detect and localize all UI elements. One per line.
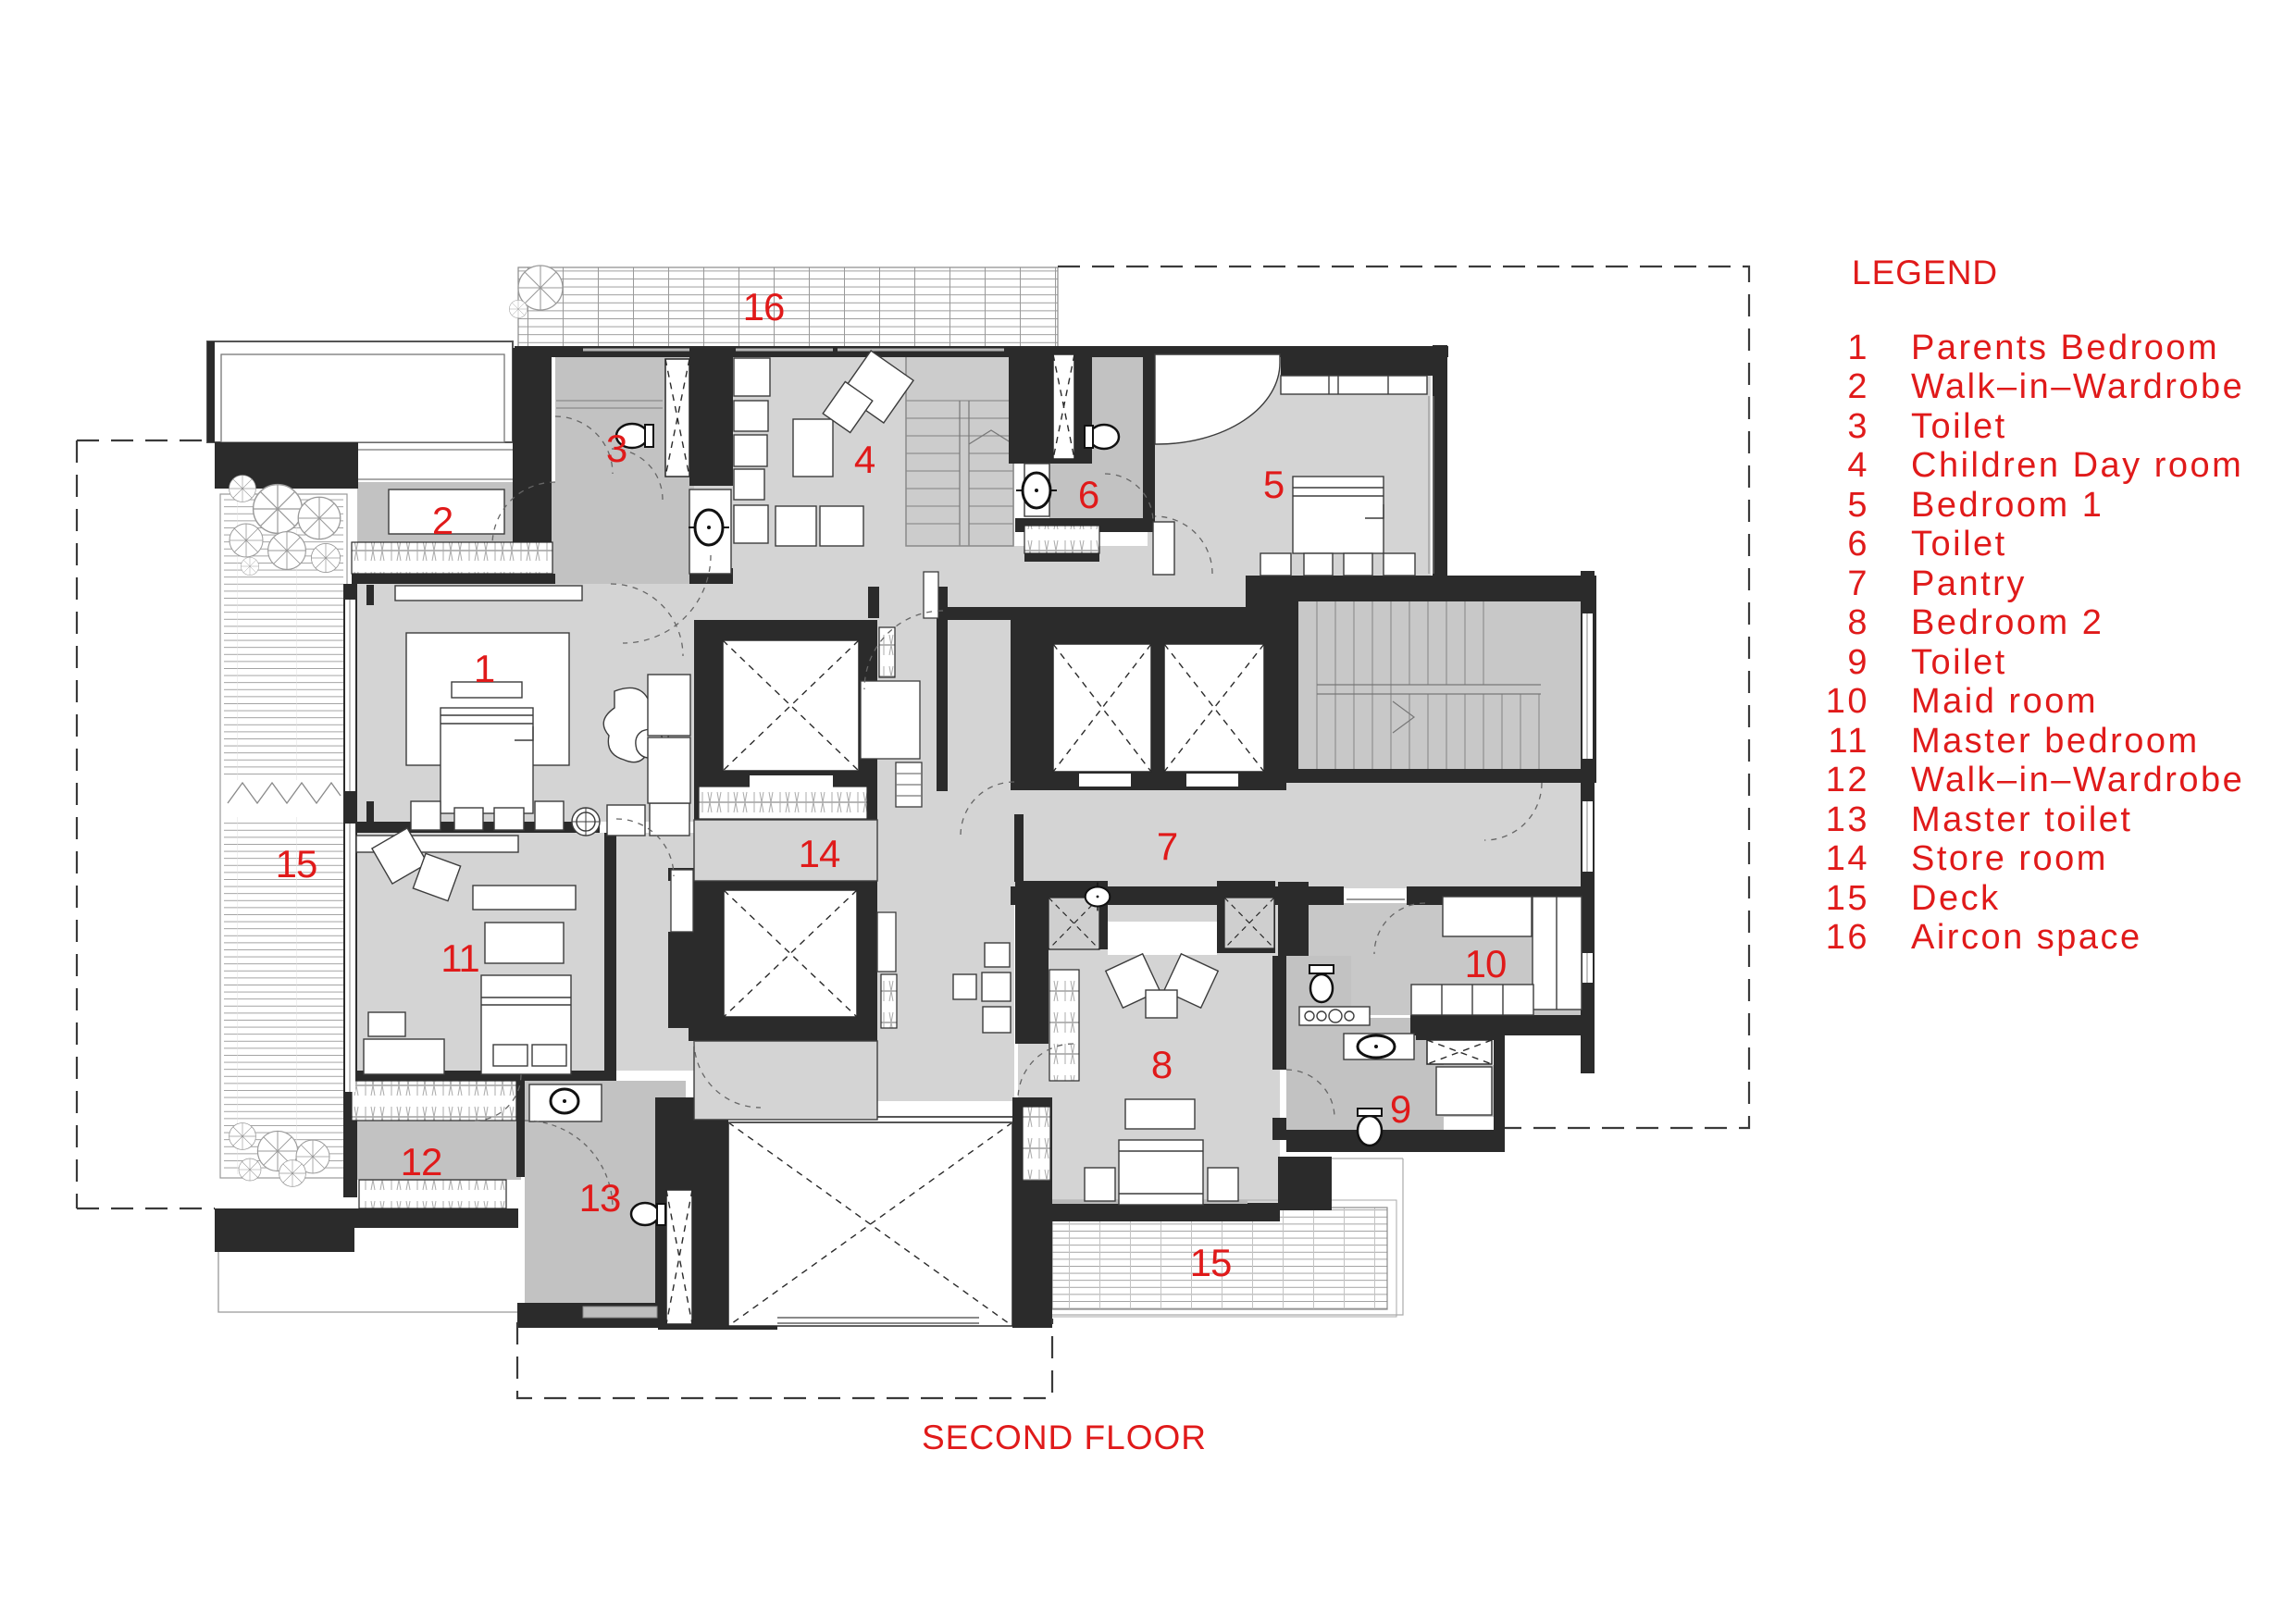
svg-text:9: 9 [1390,1087,1410,1131]
svg-text:11: 11 [441,936,479,980]
svg-text:3: 3 [606,427,627,470]
svg-text:15: 15 [1190,1241,1232,1284]
svg-text:15: 15 [276,842,317,886]
svg-text:14: 14 [799,832,840,875]
svg-text:4: 4 [854,438,875,481]
svg-text:10: 10 [1465,942,1507,985]
svg-text:SECOND FLOOR: SECOND FLOOR [922,1419,1207,1456]
svg-text:12: 12 [401,1140,442,1183]
svg-text:9: 9 [1847,643,1869,682]
svg-text:7: 7 [1157,824,1177,868]
svg-text:Deck: Deck [1911,879,2001,918]
svg-text:12: 12 [1826,761,1869,799]
svg-text:7: 7 [1847,564,1869,603]
svg-text:5: 5 [1847,486,1869,525]
svg-text:4: 4 [1847,446,1869,485]
svg-text:Pantry: Pantry [1911,564,2027,603]
svg-text:11: 11 [1829,722,1869,761]
svg-text:14: 14 [1826,839,1869,878]
svg-text:Master toilet: Master toilet [1911,800,2132,839]
svg-text:6: 6 [1847,525,1869,564]
svg-text:10: 10 [1826,682,1869,721]
svg-text:Parents Bedroom: Parents Bedroom [1911,328,2219,367]
svg-text:6: 6 [1078,473,1098,516]
svg-text:Walk–in–Wardrobe: Walk–in–Wardrobe [1911,367,2244,406]
svg-text:Children Day room: Children Day room [1911,446,2243,485]
svg-text:15: 15 [1826,879,1869,918]
svg-text:Master bedroom: Master bedroom [1911,722,2200,761]
svg-text:Store room: Store room [1911,839,2108,878]
svg-text:Walk–in–Wardrobe: Walk–in–Wardrobe [1911,761,2244,799]
svg-text:1: 1 [474,647,494,690]
svg-text:Maid room: Maid room [1911,682,2098,721]
svg-text:8: 8 [1151,1043,1172,1086]
svg-text:3: 3 [1847,407,1869,446]
svg-text:Aircon space: Aircon space [1911,918,2142,957]
svg-text:13: 13 [579,1176,621,1220]
svg-text:Bedroom 1: Bedroom 1 [1911,486,2104,525]
svg-text:8: 8 [1847,603,1869,642]
svg-text:2: 2 [432,499,453,542]
svg-text:Toilet: Toilet [1911,525,2007,564]
svg-text:13: 13 [1826,800,1869,839]
svg-text:Bedroom 2: Bedroom 2 [1911,603,2104,642]
svg-text:16: 16 [743,285,785,328]
svg-text:16: 16 [1826,918,1869,957]
svg-text:LEGEND: LEGEND [1852,254,1998,291]
svg-text:Toilet: Toilet [1911,407,2007,446]
svg-text:1: 1 [1847,328,1869,367]
svg-text:5: 5 [1263,463,1284,506]
svg-text:2: 2 [1847,367,1869,406]
svg-text:Toilet: Toilet [1911,643,2007,682]
